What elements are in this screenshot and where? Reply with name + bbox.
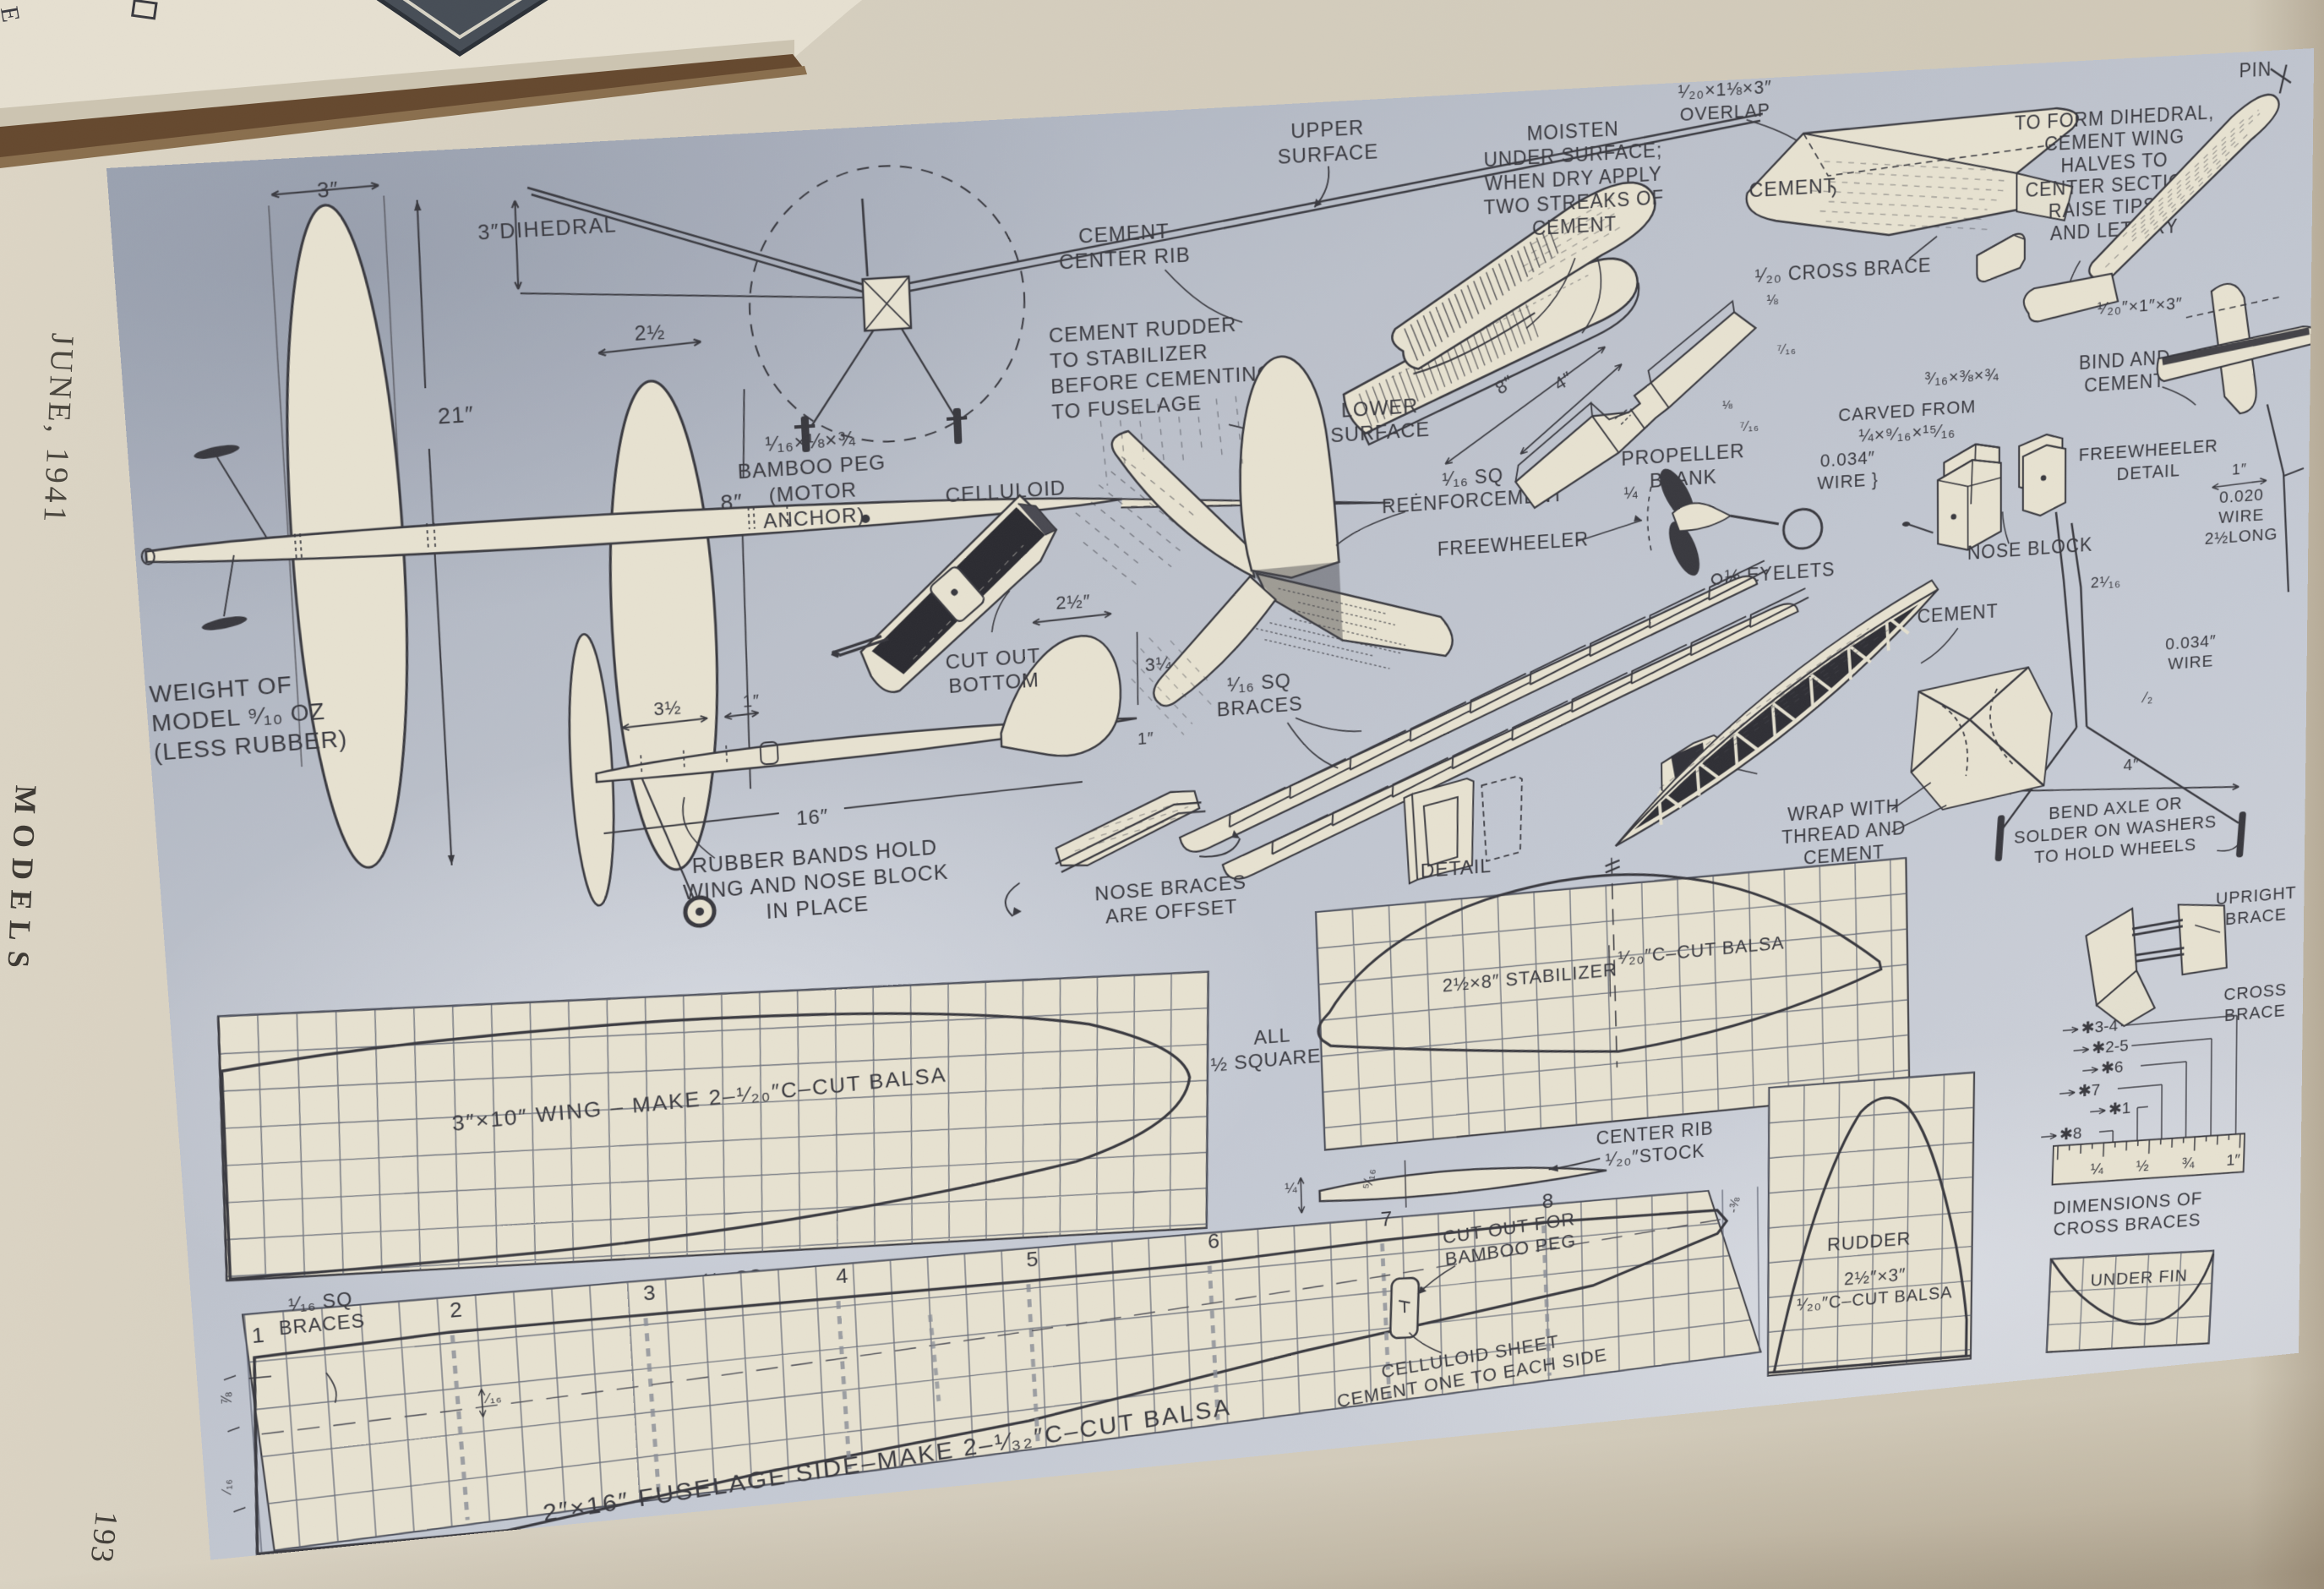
svg-text:4″: 4″ bbox=[2123, 755, 2139, 774]
svg-text:0.020: 0.020 bbox=[2219, 485, 2264, 507]
svg-text:2¹⁄₁₆: 2¹⁄₁₆ bbox=[2091, 573, 2121, 592]
svg-text:✱3-4: ✱3-4 bbox=[2081, 1016, 2119, 1037]
svg-text:7: 7 bbox=[1380, 1207, 1392, 1231]
svg-text:PIN: PIN bbox=[2239, 59, 2272, 82]
svg-text:1″: 1″ bbox=[1137, 729, 1155, 748]
svg-text:1″: 1″ bbox=[2226, 1151, 2240, 1169]
svg-text:⅛: ⅛ bbox=[1722, 398, 1733, 412]
svg-text:¼: ¼ bbox=[1623, 483, 1638, 502]
svg-text:⁵⁄₁₆: ⁵⁄₁₆ bbox=[1359, 1167, 1377, 1189]
svg-text:WIRE: WIRE bbox=[2168, 651, 2213, 673]
svg-text:4: 4 bbox=[836, 1264, 848, 1288]
svg-text:ALL: ALL bbox=[1253, 1025, 1291, 1049]
svg-text:1: 1 bbox=[251, 1323, 265, 1347]
svg-text:⅞: ⅞ bbox=[219, 1391, 236, 1405]
svg-text:16″: 16″ bbox=[796, 805, 829, 830]
svg-text:⁄₁₆: ⁄₁₆ bbox=[218, 1478, 234, 1496]
svg-text:½: ½ bbox=[2136, 1157, 2149, 1175]
svg-text:2½: 2½ bbox=[634, 321, 666, 346]
svg-text:✱1: ✱1 bbox=[2109, 1099, 2130, 1119]
svg-text:¼: ¼ bbox=[2090, 1160, 2104, 1177]
svg-text:0.034″: 0.034″ bbox=[1820, 448, 1875, 472]
svg-text:¹⁄₁₆ SQ: ¹⁄₁₆ SQ bbox=[1442, 466, 1503, 491]
svg-text:WIRE: WIRE bbox=[2218, 505, 2264, 527]
svg-text:1″: 1″ bbox=[2232, 461, 2247, 478]
svg-text:WIRE }: WIRE } bbox=[1817, 470, 1879, 494]
svg-text:✱7: ✱7 bbox=[2078, 1080, 2101, 1100]
svg-text:UPPER: UPPER bbox=[1290, 117, 1365, 143]
svg-text:¾: ¾ bbox=[2181, 1154, 2196, 1171]
svg-text:21″: 21″ bbox=[437, 401, 475, 429]
svg-text:✱2-5: ✱2-5 bbox=[2092, 1036, 2128, 1057]
svg-text:⁷⁄₁₆: ⁷⁄₁₆ bbox=[1740, 418, 1759, 434]
svg-text:✱8: ✱8 bbox=[2059, 1124, 2082, 1144]
svg-text:1″: 1″ bbox=[742, 691, 761, 712]
svg-text:2½″: 2½″ bbox=[1056, 592, 1091, 614]
svg-text:8: 8 bbox=[1541, 1189, 1553, 1213]
svg-text:⅛: ⅛ bbox=[1766, 291, 1779, 308]
svg-text:⁷⁄₁₆: ⁷⁄₁₆ bbox=[1777, 341, 1797, 358]
svg-text:-⅜: -⅜ bbox=[1726, 1196, 1743, 1213]
svg-text:3½: 3½ bbox=[653, 698, 682, 720]
svg-text:5: 5 bbox=[1026, 1248, 1039, 1271]
svg-text:3″: 3″ bbox=[316, 178, 339, 203]
svg-text:6: 6 bbox=[1208, 1229, 1220, 1253]
svg-text:✱6: ✱6 bbox=[2101, 1057, 2124, 1078]
svg-text:¼: ¼ bbox=[1285, 1180, 1298, 1197]
svg-text:0.034″: 0.034″ bbox=[2165, 631, 2217, 654]
svg-text:3: 3 bbox=[642, 1280, 656, 1305]
svg-text:2: 2 bbox=[449, 1297, 462, 1322]
